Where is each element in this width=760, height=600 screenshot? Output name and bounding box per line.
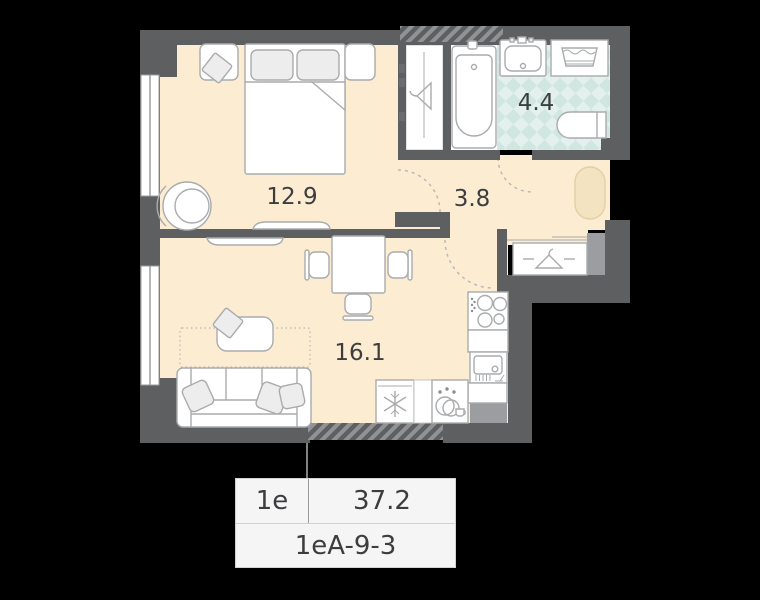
wall-entry-right-dark: [605, 220, 630, 277]
nightstand-right: [345, 44, 375, 80]
living-tv: [207, 238, 283, 245]
sink-icon: [500, 37, 546, 76]
wall-hall-stub: [395, 212, 447, 227]
wall-niche-bottom: [497, 275, 630, 303]
wall-bath-hall-left: [398, 150, 500, 160]
living-area-label: 16.1: [334, 340, 385, 366]
toilet-icon: [557, 112, 606, 138]
sofa: [177, 368, 311, 427]
counter-gap: [414, 380, 432, 423]
kitchen-sink-icon: [470, 352, 507, 383]
floorplan-stage: 12.9 3.8 4.4 16.1 1e 37.2 1eA-9-3: [0, 0, 760, 600]
flat-layout-code-value: 1eA-9-3: [295, 524, 397, 567]
bed: [245, 44, 345, 174]
wall-entry-right-light: [587, 233, 605, 275]
hallway-niche-floor: [500, 225, 588, 245]
flat-total-area-value: 37.2: [308, 479, 455, 523]
card-connector-line: [306, 443, 308, 479]
flat-summary-card[interactable]: 1e 37.2: [235, 478, 456, 524]
dishes-icon: [432, 380, 468, 423]
snowflake-icon: [376, 380, 414, 423]
wall-bedroom-closet: [398, 45, 406, 160]
wall-kitchen-east: [508, 291, 532, 425]
flat-type-value: 1e: [236, 479, 308, 523]
entry-rug: [575, 167, 605, 219]
wall-hatch-bottom: [308, 423, 443, 440]
dining-table: [332, 236, 385, 293]
entry-wardrobe: [507, 237, 587, 275]
wall-hall-vert: [440, 212, 450, 238]
wall-bottom-right: [443, 423, 532, 443]
hallway-area-label: 3.8: [454, 186, 491, 212]
bedroom-area-label: 12.9: [266, 184, 317, 210]
bathroom-area-label: 4.4: [518, 90, 555, 116]
flat-layout-code-card[interactable]: 1eA-9-3: [235, 523, 456, 568]
wall-kitchen-light-block: [470, 403, 507, 423]
nightstand-left: [200, 44, 238, 83]
bedroom-tv: [253, 222, 330, 229]
wall-bedroom-living: [160, 229, 448, 238]
wall-bath-hall-right: [532, 150, 610, 160]
counter-segment: [468, 330, 508, 352]
counter-end: [468, 383, 507, 403]
washing-machine-icon: [551, 40, 608, 76]
bathtub-icon: [452, 41, 496, 148]
wall-hatch-top: [400, 26, 503, 42]
burners-icon: [468, 292, 508, 330]
wall-closet-bath: [443, 45, 451, 155]
